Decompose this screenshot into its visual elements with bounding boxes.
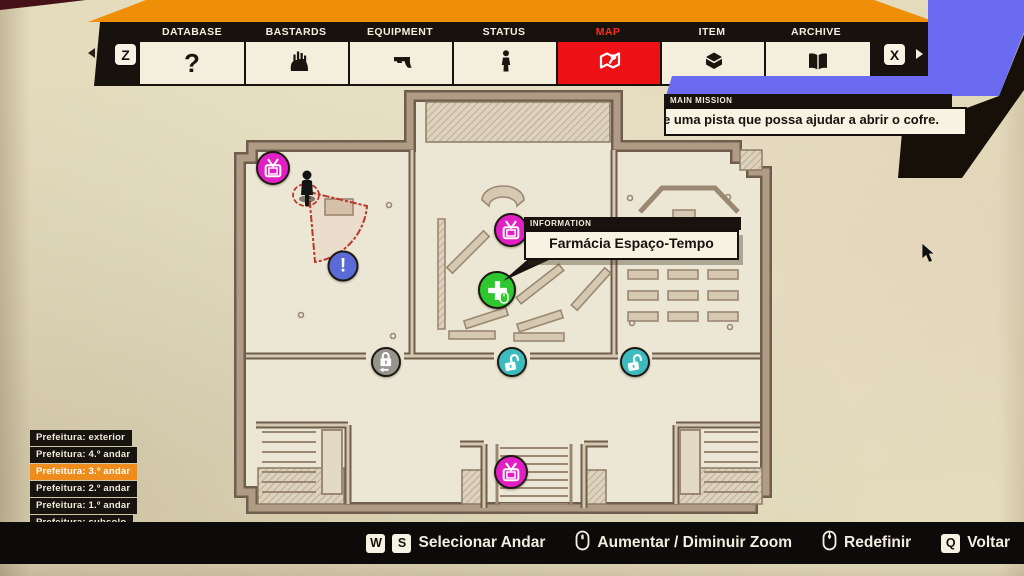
mouse-cursor (0, 0, 1024, 576)
